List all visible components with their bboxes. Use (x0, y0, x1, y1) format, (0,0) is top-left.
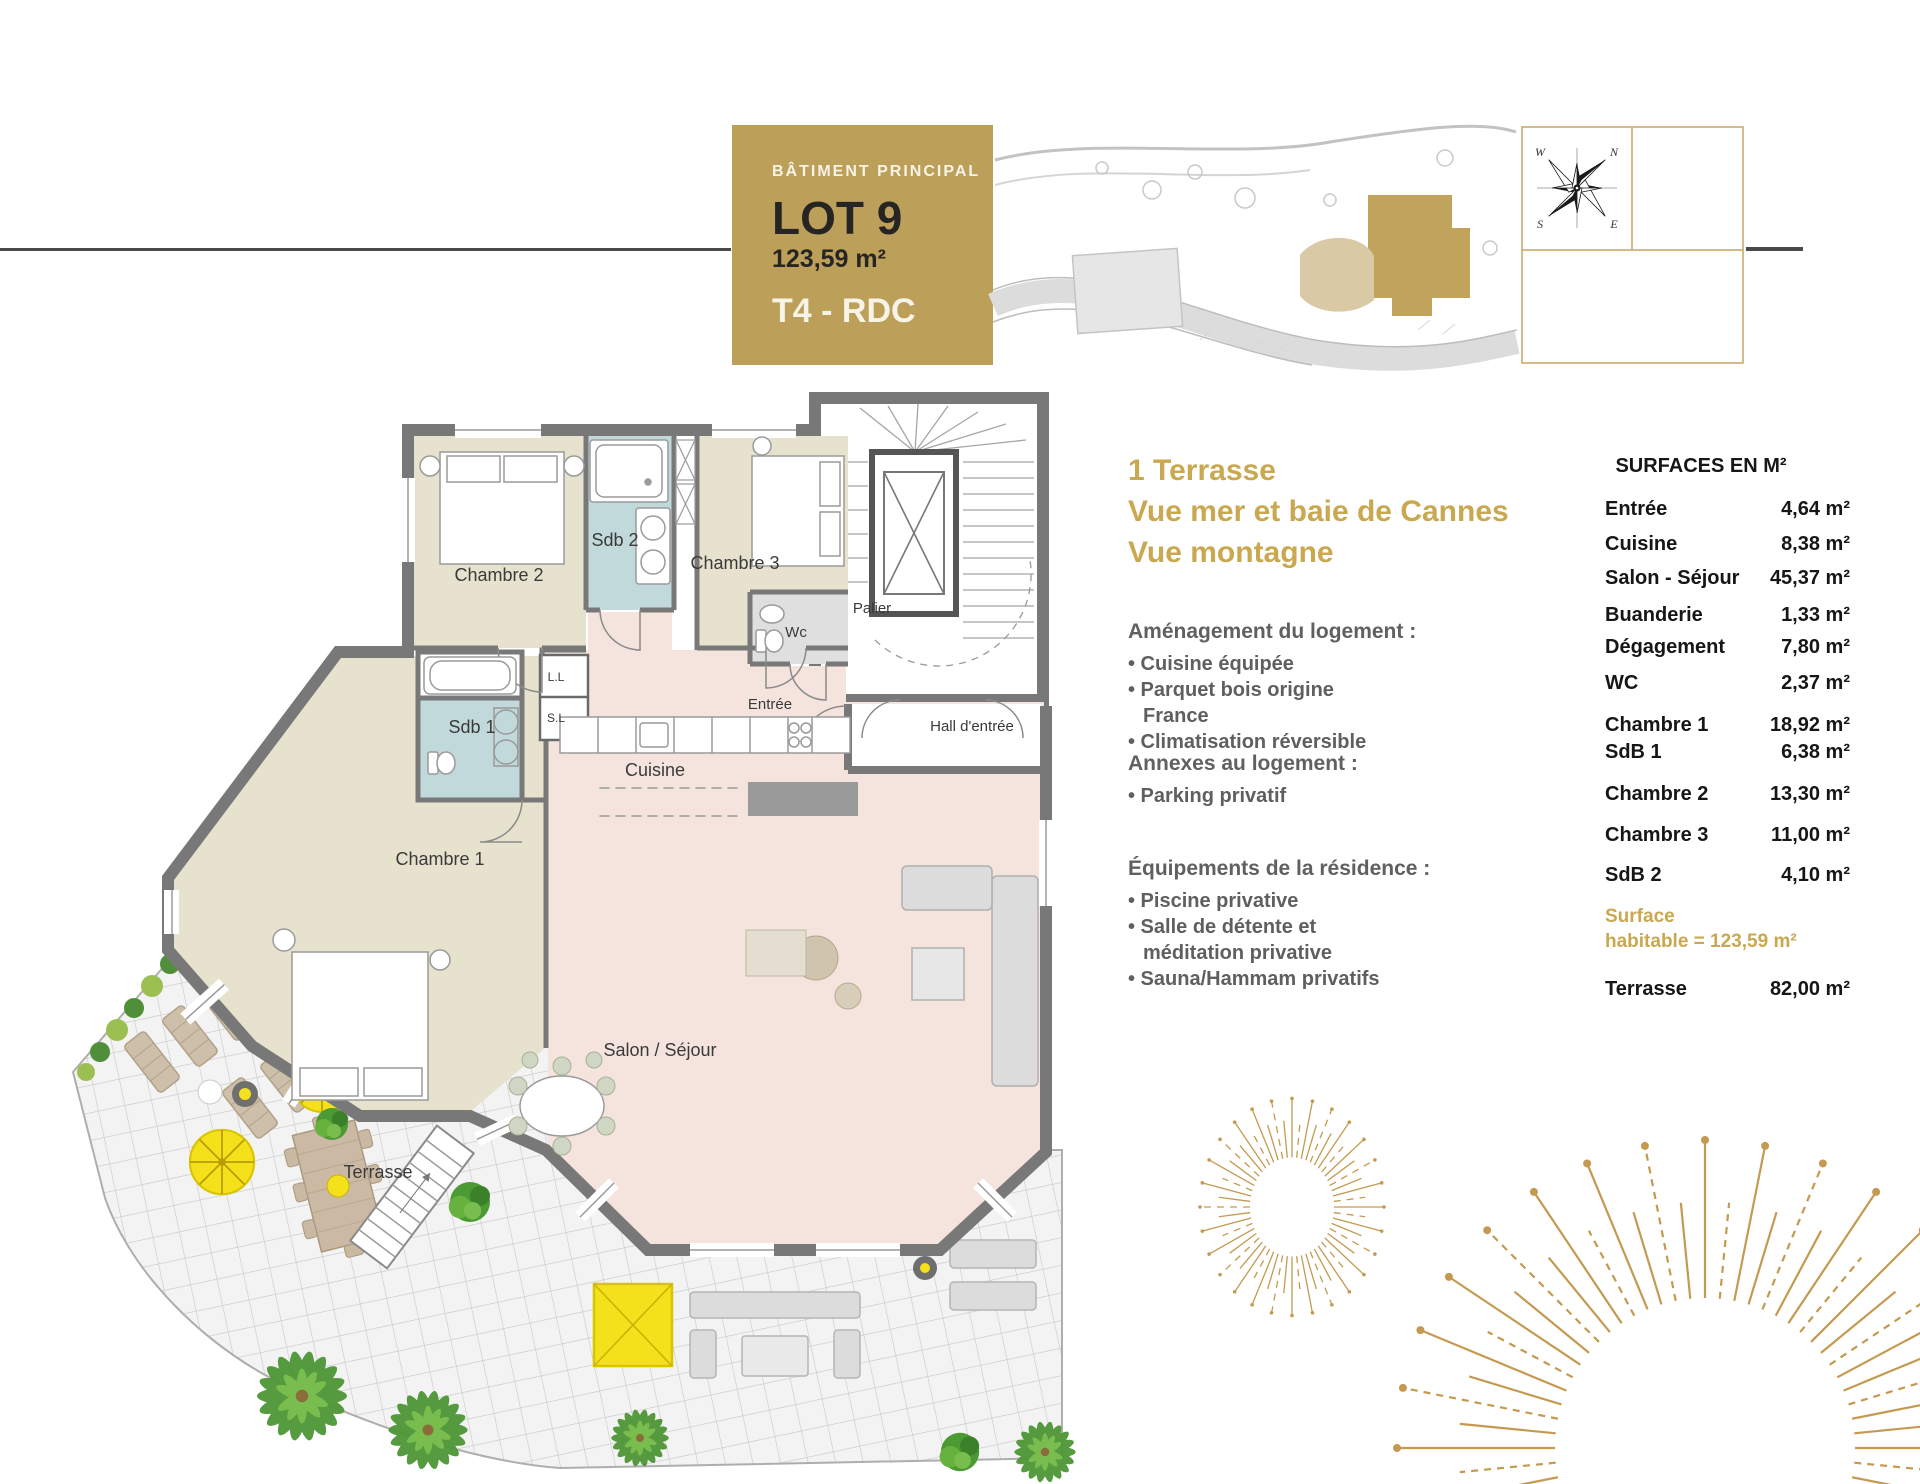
bullet-item: • Salle de détente et méditation privati… (1128, 914, 1393, 966)
surface-value: 8,38 m² (1781, 533, 1850, 556)
room-label-chambre2: Chambre 2 (454, 565, 543, 585)
bullet-item: • Sauna/Hammam privatifs (1128, 966, 1393, 992)
surface-value: 18,92 m² (1770, 714, 1850, 737)
site-plan-thumbnail (993, 125, 1518, 365)
elevator (872, 452, 956, 614)
surface-label: Chambre 1 (1605, 714, 1708, 737)
bullet-item: • Parquet bois origine France (1128, 677, 1393, 729)
section-annexes-title: Annexes au logement : (1128, 752, 1358, 776)
surface-label: Buanderie (1605, 604, 1703, 627)
section-annexes: Annexes au logement : • Parking privatif (1128, 752, 1358, 809)
surface-value: 7,80 m² (1781, 636, 1850, 659)
room-label-chambre1: Chambre 1 (395, 849, 484, 869)
room-label-sdb1: Sdb 1 (448, 717, 495, 737)
legend-boxes (1522, 127, 1743, 363)
surface-row-cuisine: Cuisine 8,38 m² (1605, 533, 1850, 556)
surface-value: 13,30 m² (1770, 783, 1850, 806)
surface-row-degagement: Dégagement 7,80 m² (1605, 636, 1850, 659)
room-label-hall: Hall d'entrée (930, 718, 1014, 735)
surface-value: 11,00 m² (1771, 824, 1850, 847)
surface-habitable-line2: habitable = 123,59 m² (1605, 931, 1797, 953)
surface-label: Terrasse (1605, 978, 1687, 1001)
surface-label: SdB 1 (1605, 741, 1662, 764)
surfaces-title: SURFACES EN M² (1591, 455, 1811, 478)
section-amenagement-title: Aménagement du logement : (1128, 620, 1416, 644)
surface-label: Salon - Séjour (1605, 567, 1739, 590)
room-label-terrasse: Terrasse (343, 1162, 412, 1182)
surface-label: Entrée (1605, 498, 1667, 521)
highlights-block: 1 Terrasse Vue mer et baie de Cannes Vue… (1128, 450, 1509, 573)
surface-row-terrasse: Terrasse 82,00 m² (1605, 978, 1850, 1001)
bullet-item: • Cuisine équipée (1128, 651, 1393, 677)
surface-row-sdb2: SdB 2 4,10 m² (1605, 864, 1850, 887)
highlight-line-1: 1 Terrasse (1128, 450, 1509, 491)
compass-west: W (1535, 145, 1546, 159)
closet-label-sl: S.L (547, 711, 565, 725)
room-label-wc: Wc (785, 624, 807, 641)
room-label-palier: Palier (853, 600, 891, 617)
surface-value: 1,33 m² (1781, 604, 1850, 627)
sunburst-small (1198, 1097, 1386, 1318)
umbrella-square (594, 1284, 672, 1366)
surface-label: SdB 2 (1605, 864, 1662, 887)
highlight-line-3: Vue montagne (1128, 532, 1509, 573)
surface-row-buanderie: Buanderie 1,33 m² (1605, 604, 1850, 627)
room-label-sdb2: Sdb 2 (591, 530, 638, 550)
surface-value: 82,00 m² (1770, 978, 1850, 1001)
hall-entree-area (848, 704, 1041, 770)
surface-label: Dégagement (1605, 636, 1725, 659)
room-label-cuisine: Cuisine (625, 760, 685, 780)
surface-row-chambre1: Chambre 1 18,92 m² (1605, 714, 1850, 737)
room-sdb1 (418, 698, 522, 800)
room-label-salon: Salon / Séjour (603, 1040, 716, 1060)
floorplan-sheet: BÂTIMENT PRINCIPAL LOT 9 123,59 m² T4 - … (0, 0, 1920, 1484)
surface-row-wc: WC 2,37 m² (1605, 672, 1850, 695)
surface-habitable-line1: Surface (1605, 906, 1675, 928)
surface-label: WC (1605, 672, 1638, 695)
compass-south: S (1537, 217, 1543, 231)
surface-row-chambre2: Chambre 2 13,30 m² (1605, 783, 1850, 806)
surface-row-sdb1: SdB 1 6,38 m² (1605, 741, 1850, 764)
highlight-line-2: Vue mer et baie de Cannes (1128, 491, 1509, 532)
closet-label-ll: L.L (548, 670, 565, 684)
section-amenagement: Aménagement du logement : • Cuisine équi… (1128, 620, 1416, 755)
section-equipements: Équipements de la résidence : • Piscine … (1128, 857, 1430, 992)
compass-east: E (1609, 217, 1618, 231)
surface-value: 4,64 m² (1781, 498, 1850, 521)
umbrella-round-2 (190, 1130, 254, 1194)
compass-north: N (1609, 145, 1619, 159)
surface-value: 45,37 m² (1770, 567, 1850, 590)
sunburst-large (1393, 1136, 1920, 1484)
surface-row-salon: Salon - Séjour 45,37 m² (1605, 567, 1850, 590)
bullet-item: • Piscine privative (1128, 888, 1393, 914)
section-equipements-title: Équipements de la résidence : (1128, 857, 1430, 881)
surface-row-chambre3: Chambre 3 11,00 m² (1605, 824, 1850, 847)
room-label-entree: Entrée (748, 696, 792, 713)
surface-label: Chambre 2 (1605, 783, 1708, 806)
room-label-chambre3: Chambre 3 (690, 553, 779, 573)
surface-value: 6,38 m² (1781, 741, 1850, 764)
surface-row-entree: Entrée 4,64 m² (1605, 498, 1850, 521)
surface-value: 4,10 m² (1781, 864, 1850, 887)
surface-label: Cuisine (1605, 533, 1677, 556)
surface-value: 2,37 m² (1781, 672, 1850, 695)
stairwell: Palier (815, 398, 1043, 700)
bullet-item: • Parking privatif (1128, 783, 1358, 809)
surface-label: Chambre 3 (1605, 824, 1708, 847)
